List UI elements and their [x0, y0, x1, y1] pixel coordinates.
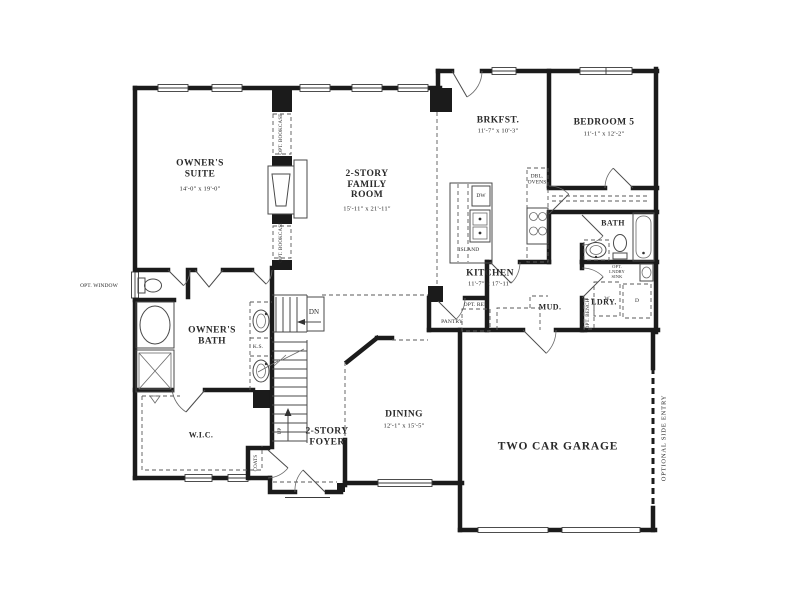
opt-ref-label: OPT. REF.: [464, 302, 489, 308]
window: [378, 480, 432, 487]
door-arc: [452, 71, 482, 97]
room-label-owners-suite: OWNER'S SUITE: [176, 158, 224, 179]
room-label-dining: DINING: [385, 410, 423, 421]
window: [492, 68, 516, 75]
front-door: [295, 470, 325, 492]
room-label-brkfst: BRKFST.: [477, 116, 519, 127]
fireplace-icon: [268, 160, 307, 218]
dw-label: DW: [476, 193, 485, 199]
shower-icon: [136, 350, 174, 403]
window: [212, 85, 242, 92]
tub-icon: [633, 213, 654, 261]
floorplan-drawing: [0, 0, 800, 600]
window: [228, 475, 248, 482]
toilet-icon: [613, 235, 627, 260]
dryer-label: D: [635, 298, 639, 304]
room-label-family-room: 2-STORY FAMILY ROOM: [346, 169, 389, 201]
fireplace-column: [268, 88, 307, 270]
laundry-sink-icon: [640, 264, 653, 281]
island-label: ISLAND: [459, 247, 480, 253]
room-dims-bedroom5: 11'-1" x 12'-2": [584, 130, 625, 137]
floorplan-page: OWNER'S SUITE 14'-0" x 19'-0" 2-STORY FA…: [0, 0, 800, 600]
sink-icon: [253, 360, 269, 382]
staircase: [258, 295, 324, 443]
window: [352, 85, 382, 92]
dn-arrow: [297, 319, 321, 325]
room-label-owners-bath: OWNER'S BATH: [188, 325, 236, 346]
opt-window-label: OPT. WINDOW: [80, 283, 118, 289]
window: [398, 85, 428, 92]
sink-icon: [586, 243, 606, 259]
door-arc: [582, 268, 603, 298]
window: [185, 475, 212, 482]
room-label-foyer: 2-STORY FOYER: [306, 426, 349, 447]
up-arrow: [285, 408, 292, 441]
washer-label: W: [604, 296, 609, 302]
room-dims-family-room: 15'-11" x 21'-11": [343, 205, 390, 212]
room-dims-owners-suite: 14'-0" x 19'-0": [180, 185, 221, 192]
garage-door: [562, 528, 640, 533]
windows: [132, 68, 641, 533]
opt-bookcase-label: OPT. BOOKCASE: [279, 113, 285, 154]
room-label-garage: TWO CAR GARAGE: [498, 441, 618, 454]
window: [580, 68, 632, 75]
opt-bench-label: OPT. BENCH: [586, 299, 592, 330]
door-arc: [605, 168, 633, 188]
pantry-label: PANTRY: [441, 319, 463, 325]
dbl-ovens-label: DBL. OVENS: [528, 174, 547, 187]
ks-label: K.S.: [253, 344, 263, 350]
exterior-walls: [135, 69, 658, 530]
tub-icon: [136, 302, 174, 348]
room-label-kitchen: KITCHEN: [466, 269, 514, 280]
double-door: [195, 270, 223, 287]
room-label-mud: MUD.: [539, 304, 562, 313]
door-arc: [523, 330, 556, 353]
coats-label: COATS: [254, 455, 260, 472]
sink-icon: [253, 310, 269, 332]
room-label-bath: BATH: [601, 220, 625, 229]
optional-side-entry-label: OPTIONAL SIDE ENTRY: [660, 395, 667, 481]
window: [158, 85, 188, 92]
door-arc: [252, 270, 272, 284]
door-arc: [172, 390, 205, 412]
garage-door: [478, 528, 548, 533]
toilet-icon: [138, 278, 162, 293]
room-label-wic: W.I.C.: [189, 432, 214, 441]
opt-lndry-sink-label: OPT. LNDRY SINK: [609, 264, 625, 280]
up-label: UP: [278, 428, 284, 435]
cooktop-icon: [527, 208, 548, 244]
opt-bookcase-label: OPT. BOOKCASE: [279, 221, 285, 262]
room-dims-dining: 12'-1" x 15'-5": [384, 422, 425, 429]
door-arc: [268, 450, 288, 478]
room-dims-brkfst: 11'-7" x 10'-3": [478, 127, 519, 134]
window: [300, 85, 330, 92]
counter-run: [497, 296, 548, 330]
room-dims-kitchen: 11'-7" x 17'-11": [468, 280, 512, 287]
door-arc: [582, 215, 603, 245]
dn-label: DN: [309, 308, 319, 316]
optional-window: [132, 272, 139, 298]
room-label-bedroom5: BEDROOM 5: [574, 118, 635, 129]
